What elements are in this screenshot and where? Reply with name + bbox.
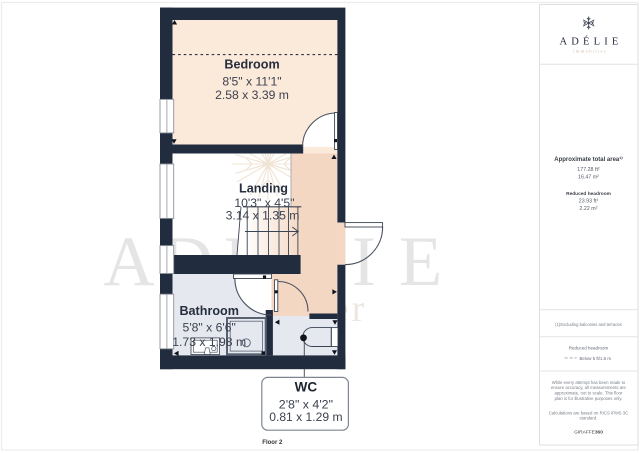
svg-text:ADÉLIE: ADÉLIE bbox=[559, 36, 622, 48]
svg-text:GIRAFFE360: GIRAFFE360 bbox=[574, 429, 603, 435]
svg-text:WC: WC bbox=[295, 380, 318, 395]
svg-text:1.73 x 1.98 m: 1.73 x 1.98 m bbox=[172, 335, 246, 349]
svg-text:Bathroom: Bathroom bbox=[179, 304, 238, 318]
svg-text:standard.: standard. bbox=[580, 416, 598, 421]
svg-text:2.22 m²: 2.22 m² bbox=[580, 206, 598, 212]
svg-text:23.93 ft²: 23.93 ft² bbox=[579, 199, 599, 205]
svg-text:Bedroom: Bedroom bbox=[224, 58, 279, 72]
svg-text:Reduced headroom: Reduced headroom bbox=[569, 346, 609, 351]
svg-text:177.28 ft²: 177.28 ft² bbox=[577, 167, 600, 173]
svg-text:Calculations are based on RICS: Calculations are based on RICS IPMS 3C bbox=[549, 410, 629, 415]
svg-text:Landing: Landing bbox=[239, 182, 288, 196]
svg-text:Floor 2: Floor 2 bbox=[262, 440, 283, 446]
svg-text:Approximate total area¹⁾: Approximate total area¹⁾ bbox=[554, 156, 623, 163]
svg-text:ensure accuracy, all measureme: ensure accuracy, all measurements are bbox=[551, 385, 627, 390]
svg-text:approximate, not to scale. Thi: approximate, not to scale. This floor bbox=[555, 391, 624, 396]
svg-text:0.81 x 1.29 m: 0.81 x 1.29 m bbox=[269, 410, 342, 424]
svg-text:Below 5 ft/1.5 m: Below 5 ft/1.5 m bbox=[580, 356, 612, 361]
svg-text:A: A bbox=[103, 223, 154, 301]
svg-text:plan is for illustrative purpo: plan is for illustrative purposes only. bbox=[555, 396, 623, 401]
svg-text:8'5" x 11'1": 8'5" x 11'1" bbox=[222, 75, 281, 89]
svg-text:Reduced headroom: Reduced headroom bbox=[566, 191, 611, 197]
svg-text:E: E bbox=[399, 223, 442, 301]
svg-text:(1)Excluding balconies and ter: (1)Excluding balconies and terraces bbox=[555, 322, 622, 327]
svg-text:5'8" x 6'6": 5'8" x 6'6" bbox=[183, 320, 236, 334]
svg-text:While every attempt has been m: While every attempt has been made to bbox=[552, 380, 626, 385]
svg-text:2.58 x 3.39 m: 2.58 x 3.39 m bbox=[215, 88, 289, 102]
svg-text:3.14 x 1.35 m: 3.14 x 1.35 m bbox=[226, 209, 300, 223]
svg-text:16.47 m²: 16.47 m² bbox=[578, 175, 599, 181]
svg-text:immobilier: immobilier bbox=[573, 49, 606, 54]
